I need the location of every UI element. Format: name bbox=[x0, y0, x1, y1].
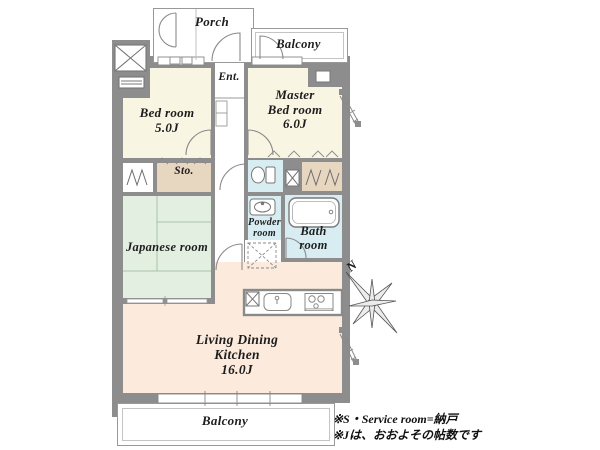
master-bedroom-name-line1: Master bbox=[248, 88, 342, 103]
tatami-grid-lines bbox=[123, 196, 211, 271]
storage-label: Sto. bbox=[157, 165, 211, 178]
floorplan-page: Porch Balcony Ent. Bed room 5.0J Master … bbox=[0, 0, 600, 450]
footnote-tatami-count: ※Jは、おおよその帖数です bbox=[333, 427, 508, 443]
bath-room-name-line2: room bbox=[285, 238, 342, 252]
pipe-shaft-icon bbox=[115, 45, 146, 88]
stove-icon bbox=[305, 294, 333, 311]
master-bedroom-name-line2: Bed room bbox=[248, 103, 342, 118]
toilet-icon bbox=[252, 167, 276, 183]
master-bedroom-size: 6.0J bbox=[248, 117, 342, 132]
ldk-name-line2: Kitchen bbox=[167, 347, 307, 362]
footnote-service-room: ※S・Service room=納戸 bbox=[333, 411, 508, 427]
balcony-top-label: Balcony bbox=[251, 37, 346, 51]
master-bedroom-label: Master Bed room 6.0J bbox=[248, 88, 342, 132]
bedroom-size: 5.0J bbox=[123, 121, 211, 136]
powder-room-name-line1: Powder bbox=[242, 217, 287, 228]
kitchen-sink-icon bbox=[264, 294, 291, 311]
bathtub-icon bbox=[289, 198, 339, 227]
ldk-name-line1: Living Dining bbox=[167, 332, 307, 347]
kitchen-counter bbox=[244, 290, 342, 315]
bedroom-label: Bed room 5.0J bbox=[123, 106, 211, 135]
kitchen-duct-box bbox=[246, 292, 259, 306]
ldk-label: Living Dining Kitchen 16.0J bbox=[167, 332, 307, 377]
entrance-label: Ent. bbox=[212, 71, 246, 84]
sink-icon bbox=[250, 199, 275, 215]
bay-window-ldk bbox=[339, 327, 359, 365]
powder-room-name-line2: room bbox=[242, 228, 287, 239]
bedroom-name: Bed room bbox=[123, 106, 211, 121]
bath-room-name-line1: Bath bbox=[285, 224, 342, 238]
porch-label: Porch bbox=[167, 15, 257, 30]
japanese-room-label: Japanese room bbox=[118, 240, 216, 254]
washer-pan-icon bbox=[248, 243, 276, 268]
powder-room-label: Powder room bbox=[242, 217, 287, 239]
ldk-size: 16.0J bbox=[167, 362, 307, 377]
door-tick-marks bbox=[156, 151, 338, 164]
sliding-door-marks bbox=[127, 296, 207, 306]
footnotes: ※S・Service room=納戸 ※Jは、おおよその帖数です bbox=[333, 411, 508, 443]
balcony-bottom-label: Balcony bbox=[117, 414, 333, 429]
bath-room-label: Bath room bbox=[285, 224, 342, 252]
compass-icon bbox=[346, 272, 397, 333]
bay-window-master bbox=[339, 89, 361, 127]
